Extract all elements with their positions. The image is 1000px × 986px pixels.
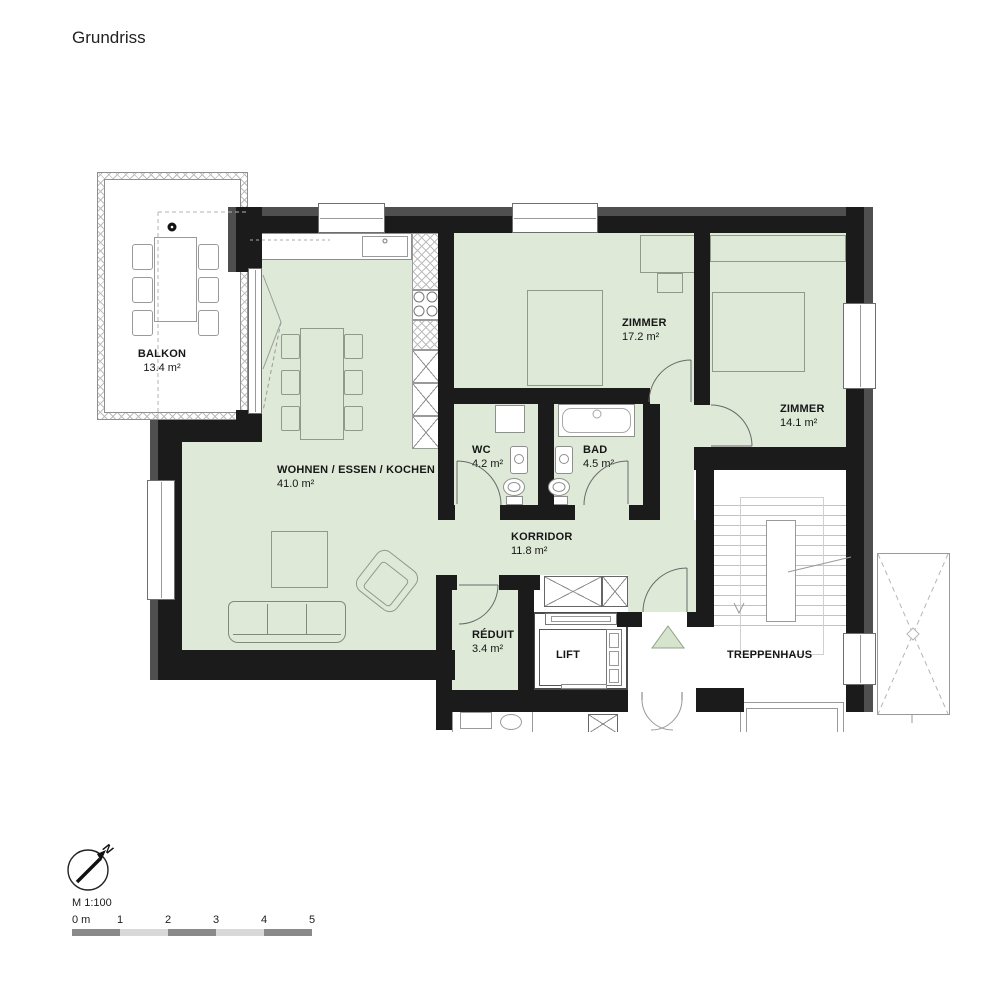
wall-segment	[694, 447, 848, 470]
lift-mechanism	[609, 669, 619, 683]
room-label-bad: BAD 4.5 m²	[583, 443, 614, 471]
scale-segment	[264, 929, 312, 936]
lower-unit-wardrobe	[588, 714, 618, 732]
room-label-treppenhaus: TREPPENHAUS	[727, 648, 812, 662]
sofa-divider	[267, 604, 268, 634]
room-area: 11.8 m²	[511, 544, 573, 558]
room-area: 3.4 m²	[472, 642, 514, 656]
balcony-table	[154, 237, 197, 322]
chair	[198, 310, 219, 336]
floor-plan-canvas: Grundriss	[0, 0, 1000, 986]
room-name: LIFT	[556, 648, 580, 662]
room-area: 14.1 m²	[780, 416, 825, 430]
wall-segment	[438, 505, 455, 520]
corridor-area	[628, 575, 696, 612]
window	[147, 480, 175, 600]
balcony-door	[248, 268, 262, 414]
room-name: ZIMMER	[622, 316, 667, 330]
corridor-area	[649, 388, 694, 404]
chair	[344, 334, 363, 359]
compass-needle	[77, 859, 100, 882]
wall-segment	[158, 650, 455, 680]
window	[843, 633, 876, 685]
wall-segment	[696, 688, 744, 712]
wall-segment	[500, 505, 575, 520]
doorway	[455, 505, 500, 520]
page-title: Grundriss	[72, 28, 146, 48]
north-compass: N	[55, 835, 125, 905]
chair	[198, 244, 219, 270]
room-area: 17.2 m²	[622, 330, 667, 344]
lift-mechanism	[609, 633, 619, 648]
bathtub-basin	[562, 408, 631, 433]
room-name: KORRIDOR	[511, 530, 573, 544]
wardrobe	[657, 273, 683, 293]
built-in-wardrobe	[602, 576, 628, 607]
room-area: 41.0 m²	[277, 477, 435, 491]
sofa-back-line	[233, 634, 341, 635]
shower	[495, 405, 525, 433]
wall-segment	[438, 233, 454, 520]
doorway	[575, 505, 629, 520]
room-area: 13.4 m²	[112, 361, 212, 375]
chair	[281, 406, 300, 431]
chair	[344, 370, 363, 395]
bed	[527, 290, 603, 386]
washbasin	[510, 446, 528, 474]
room-label-lift: LIFT	[556, 648, 580, 662]
scale-tick-labels: 0 m 1 2 3 4 5	[72, 914, 312, 927]
chair	[132, 277, 153, 303]
chair	[281, 334, 300, 359]
wardrobe	[710, 235, 846, 262]
wall-segment	[696, 470, 714, 627]
scale-segment	[216, 929, 264, 936]
room-name: BAD	[583, 443, 614, 457]
wall-segment	[694, 233, 710, 405]
room-label-balkon: BALKON 13.4 m²	[112, 347, 212, 375]
wall-segment	[436, 690, 534, 712]
wall-segment	[236, 207, 262, 272]
lower-unit-fixture	[500, 714, 522, 730]
exterior-band	[228, 207, 236, 272]
wall-segment	[518, 576, 534, 690]
chair	[198, 277, 219, 303]
entrance-marker-triangle	[652, 626, 684, 648]
wall-segment	[629, 505, 660, 520]
wardrobe	[640, 235, 698, 273]
room-label-wc: WC 4.2 m²	[472, 443, 503, 471]
scale-tick: 0 m	[72, 914, 90, 926]
scale-tick: 3	[213, 914, 219, 926]
toilet-tank	[506, 496, 523, 505]
scale-tick: 2	[165, 914, 171, 926]
chair	[132, 310, 153, 336]
room-label-korridor: KORRIDOR 11.8 m²	[511, 530, 573, 558]
kitchen-sink	[362, 236, 408, 257]
scale-tick: 1	[117, 914, 123, 926]
room-name: TREPPENHAUS	[727, 648, 812, 662]
scale-bar: M 1:100 0 m 1 2 3 4 5	[72, 897, 312, 936]
corridor-area	[660, 404, 694, 520]
lower-unit-room	[746, 708, 838, 732]
sofa	[228, 601, 346, 643]
wall-segment	[643, 404, 660, 505]
chair	[281, 370, 300, 395]
room-area: 4.2 m²	[472, 457, 503, 471]
room-name: WOHNEN / ESSEN / KOCHEN	[277, 463, 435, 477]
wall-segment	[617, 612, 642, 627]
window	[318, 203, 385, 233]
wall-segment	[687, 612, 714, 627]
wall-segment	[438, 388, 650, 404]
room-name: ZIMMER	[780, 402, 825, 416]
kitchen-tall-cabinet	[412, 233, 440, 290]
doorway	[457, 575, 499, 590]
dining-table	[300, 328, 344, 440]
door-leaf	[642, 692, 682, 700]
scale-tick: 5	[309, 914, 315, 926]
bed	[712, 292, 805, 372]
lift-mechanism	[609, 651, 619, 666]
room-label-wohnen: WOHNEN / ESSEN / KOCHEN 41.0 m²	[277, 463, 435, 491]
kitchen-cabinet	[412, 350, 440, 383]
stair-landing-wall	[766, 520, 796, 622]
kitchen-stove	[412, 290, 440, 320]
window	[843, 303, 876, 389]
sofa-divider	[306, 604, 307, 634]
room-name: BALKON	[112, 347, 212, 361]
lower-unit-basin	[460, 712, 492, 729]
doorway	[694, 405, 710, 447]
chair	[344, 406, 363, 431]
kitchen-cabinet	[412, 383, 440, 416]
scale-segment	[72, 929, 120, 936]
lift-door	[551, 616, 611, 622]
room-label-reduit: RÉDUIT 3.4 m²	[472, 628, 514, 656]
scale-label: M 1:100	[72, 897, 312, 909]
window	[512, 203, 598, 233]
scale-tick: 4	[261, 914, 267, 926]
kitchen-tall-cabinet	[412, 320, 440, 350]
scale-segment	[120, 929, 168, 936]
lift-door	[561, 684, 607, 689]
room-name: RÉDUIT	[472, 628, 514, 642]
wall-segment	[538, 404, 554, 505]
chair	[132, 244, 153, 270]
washbasin	[555, 446, 573, 474]
room-name: WC	[472, 443, 503, 457]
room-label-zimmer1: ZIMMER 17.2 m²	[622, 316, 667, 344]
coffee-table	[271, 531, 328, 588]
room-label-zimmer2: ZIMMER 14.1 m²	[780, 402, 825, 430]
scale-bar-segments	[72, 929, 312, 936]
scale-segment	[168, 929, 216, 936]
built-in-wardrobe	[544, 576, 602, 607]
kitchen-cabinet	[412, 416, 440, 449]
room-area: 4.5 m²	[583, 457, 614, 471]
wall-segment	[533, 690, 628, 712]
